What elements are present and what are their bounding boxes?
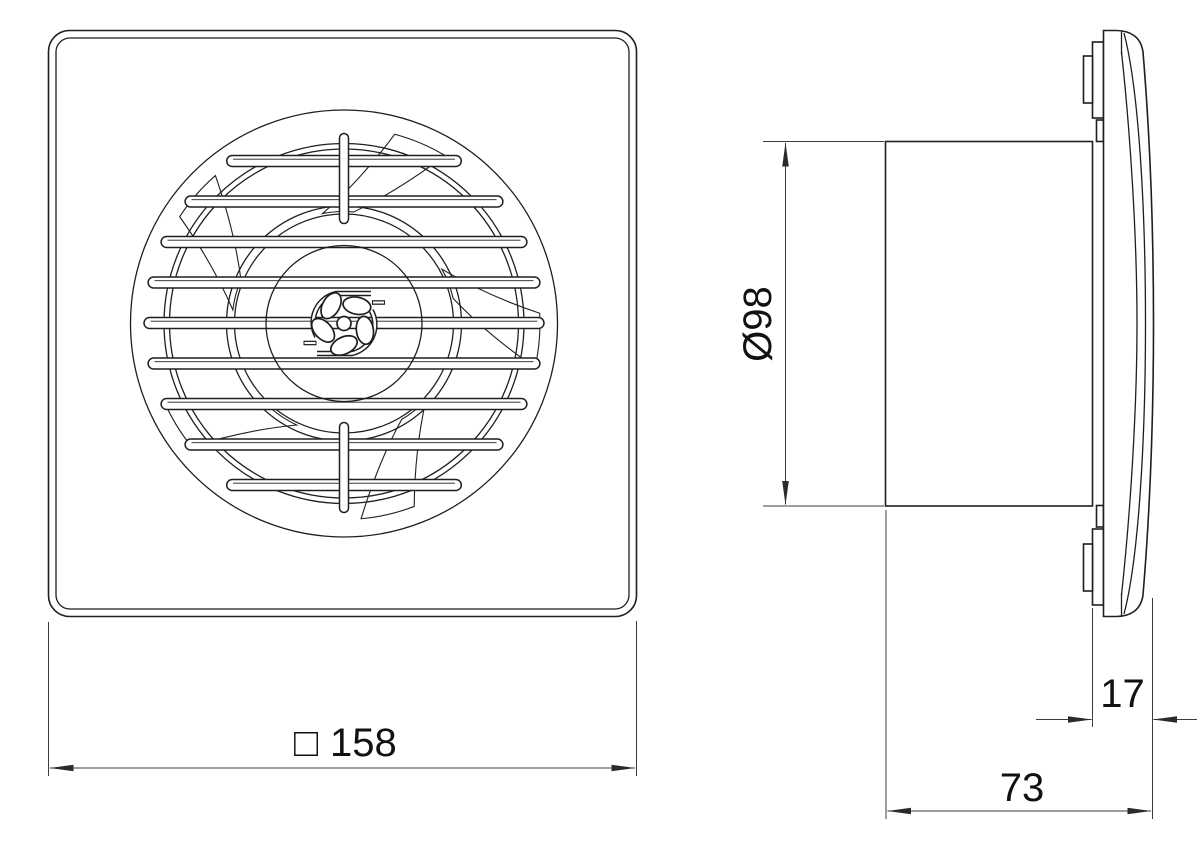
fan-technical-drawing: □ 158 Ø98 17 73 (0, 0, 1200, 845)
mounting-lug (1084, 56, 1093, 103)
slat-row (148, 358, 540, 369)
duct-spigot (886, 142, 1093, 507)
grille-spine-top (340, 134, 349, 224)
side-view (886, 31, 1154, 617)
front-depth-value: 17 (1100, 672, 1145, 716)
front-view (49, 31, 637, 617)
drawing-canvas: □ 158 Ø98 17 73 (0, 0, 1200, 845)
mounting-lug (1084, 544, 1093, 591)
duct-diameter-value: Ø98 (736, 286, 780, 362)
front-width-value: 158 (330, 721, 397, 765)
rear-depth-value: 73 (1000, 766, 1045, 810)
slat-row (148, 277, 540, 288)
mounting-lug (1097, 506, 1104, 528)
logo-center-hub (337, 317, 351, 331)
mounting-lug (1093, 529, 1104, 605)
slat-row (161, 399, 527, 410)
front-width-square-symbol: □ (294, 721, 318, 765)
grille-spine-bottom (340, 423, 349, 513)
mounting-lug (1093, 42, 1104, 118)
mounting-lug (1097, 120, 1104, 142)
